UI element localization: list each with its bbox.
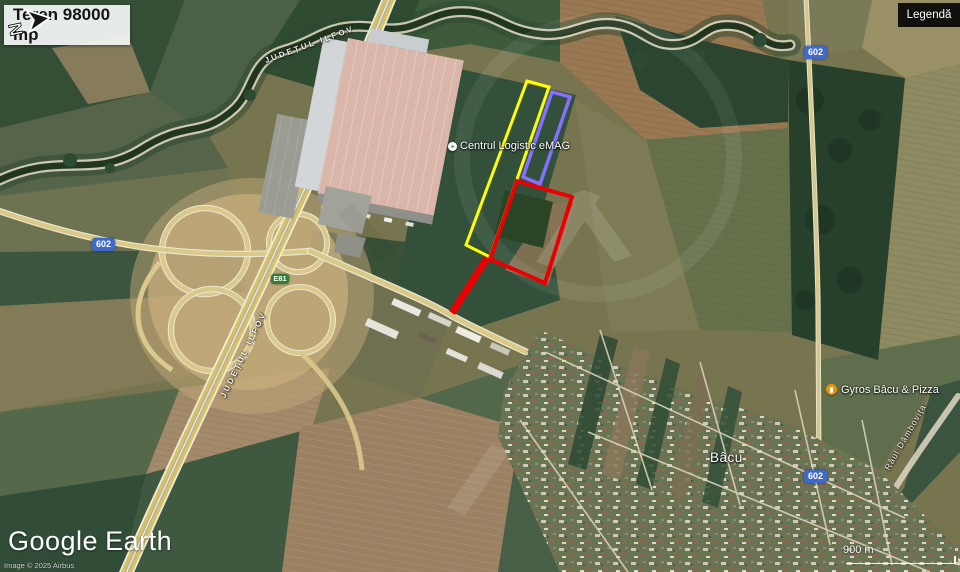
label-poi-gyros: Gyros Bâcu & Pizza	[841, 384, 939, 396]
legend-button[interactable]: Legendă	[898, 3, 960, 27]
scale-bar	[846, 556, 956, 564]
parcel-red-access-strip[interactable]	[452, 258, 487, 313]
compass-n-letter: N	[4, 21, 26, 38]
parcel-overlays	[0, 0, 960, 572]
logo-google: Google	[8, 526, 98, 556]
road-shield-602-north: 602	[804, 46, 827, 59]
road-shield-e81: E81	[271, 274, 289, 284]
parcel-outline-red[interactable]	[490, 181, 572, 283]
parcel-outline-yellow[interactable]	[466, 81, 549, 257]
compass-arrow-icon	[26, 7, 51, 32]
logo-earth: Earth	[105, 526, 172, 556]
road-shield-602-bacu: 602	[804, 470, 827, 483]
scale-label: 900 m	[843, 544, 874, 556]
compass-north-arrow[interactable]: N	[0, 0, 59, 46]
google-earth-map-view[interactable]: Centrul Logistic eMAG Bâcu Gyros Bâcu & …	[0, 0, 960, 572]
road-shield-602-west: 602	[92, 238, 115, 251]
restaurant-poi-icon[interactable]	[826, 384, 837, 395]
label-town-bacu: Bâcu	[710, 450, 743, 465]
label-logistics-center: Centrul Logistic eMAG	[460, 140, 570, 152]
imagery-attribution: Image © 2025 Airbus	[4, 561, 74, 570]
google-earth-logo: GoogleEarth	[8, 526, 172, 557]
placemark-pin-icon[interactable]	[448, 142, 457, 151]
